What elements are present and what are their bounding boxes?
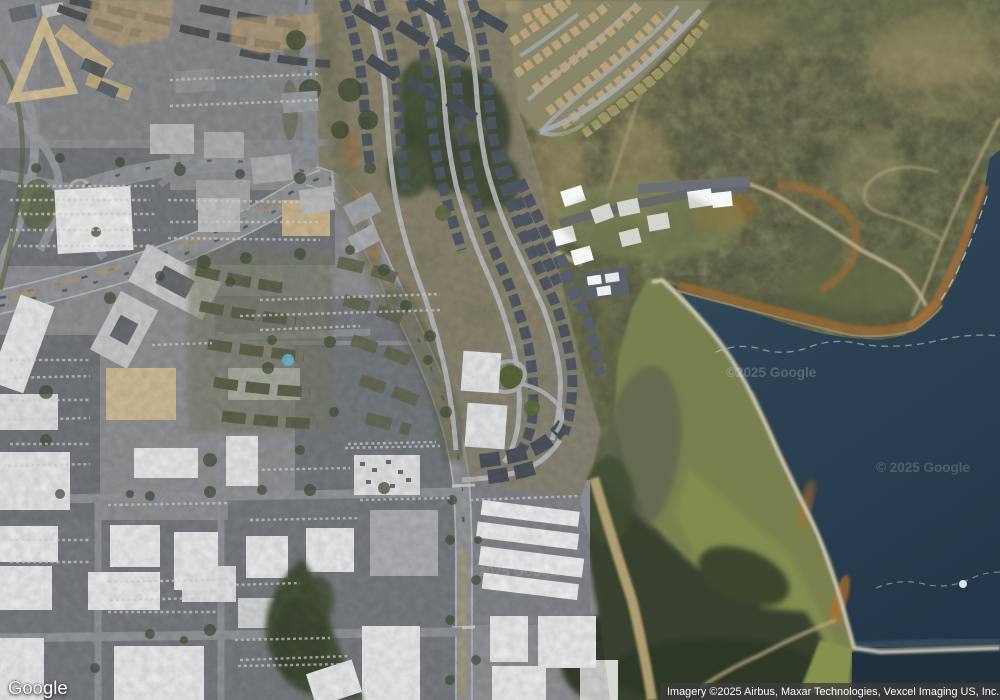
svg-text:Google: Google — [8, 677, 68, 698]
svg-text:© 2025 Google: © 2025 Google — [876, 460, 970, 475]
svg-text:©2025 Google: ©2025 Google — [726, 365, 817, 380]
svg-text:Imagery ©2025 Airbus, Maxar Te: Imagery ©2025 Airbus, Maxar Technologies… — [667, 686, 999, 698]
svg-text:©2025 Google: ©2025 Google — [468, 563, 562, 579]
